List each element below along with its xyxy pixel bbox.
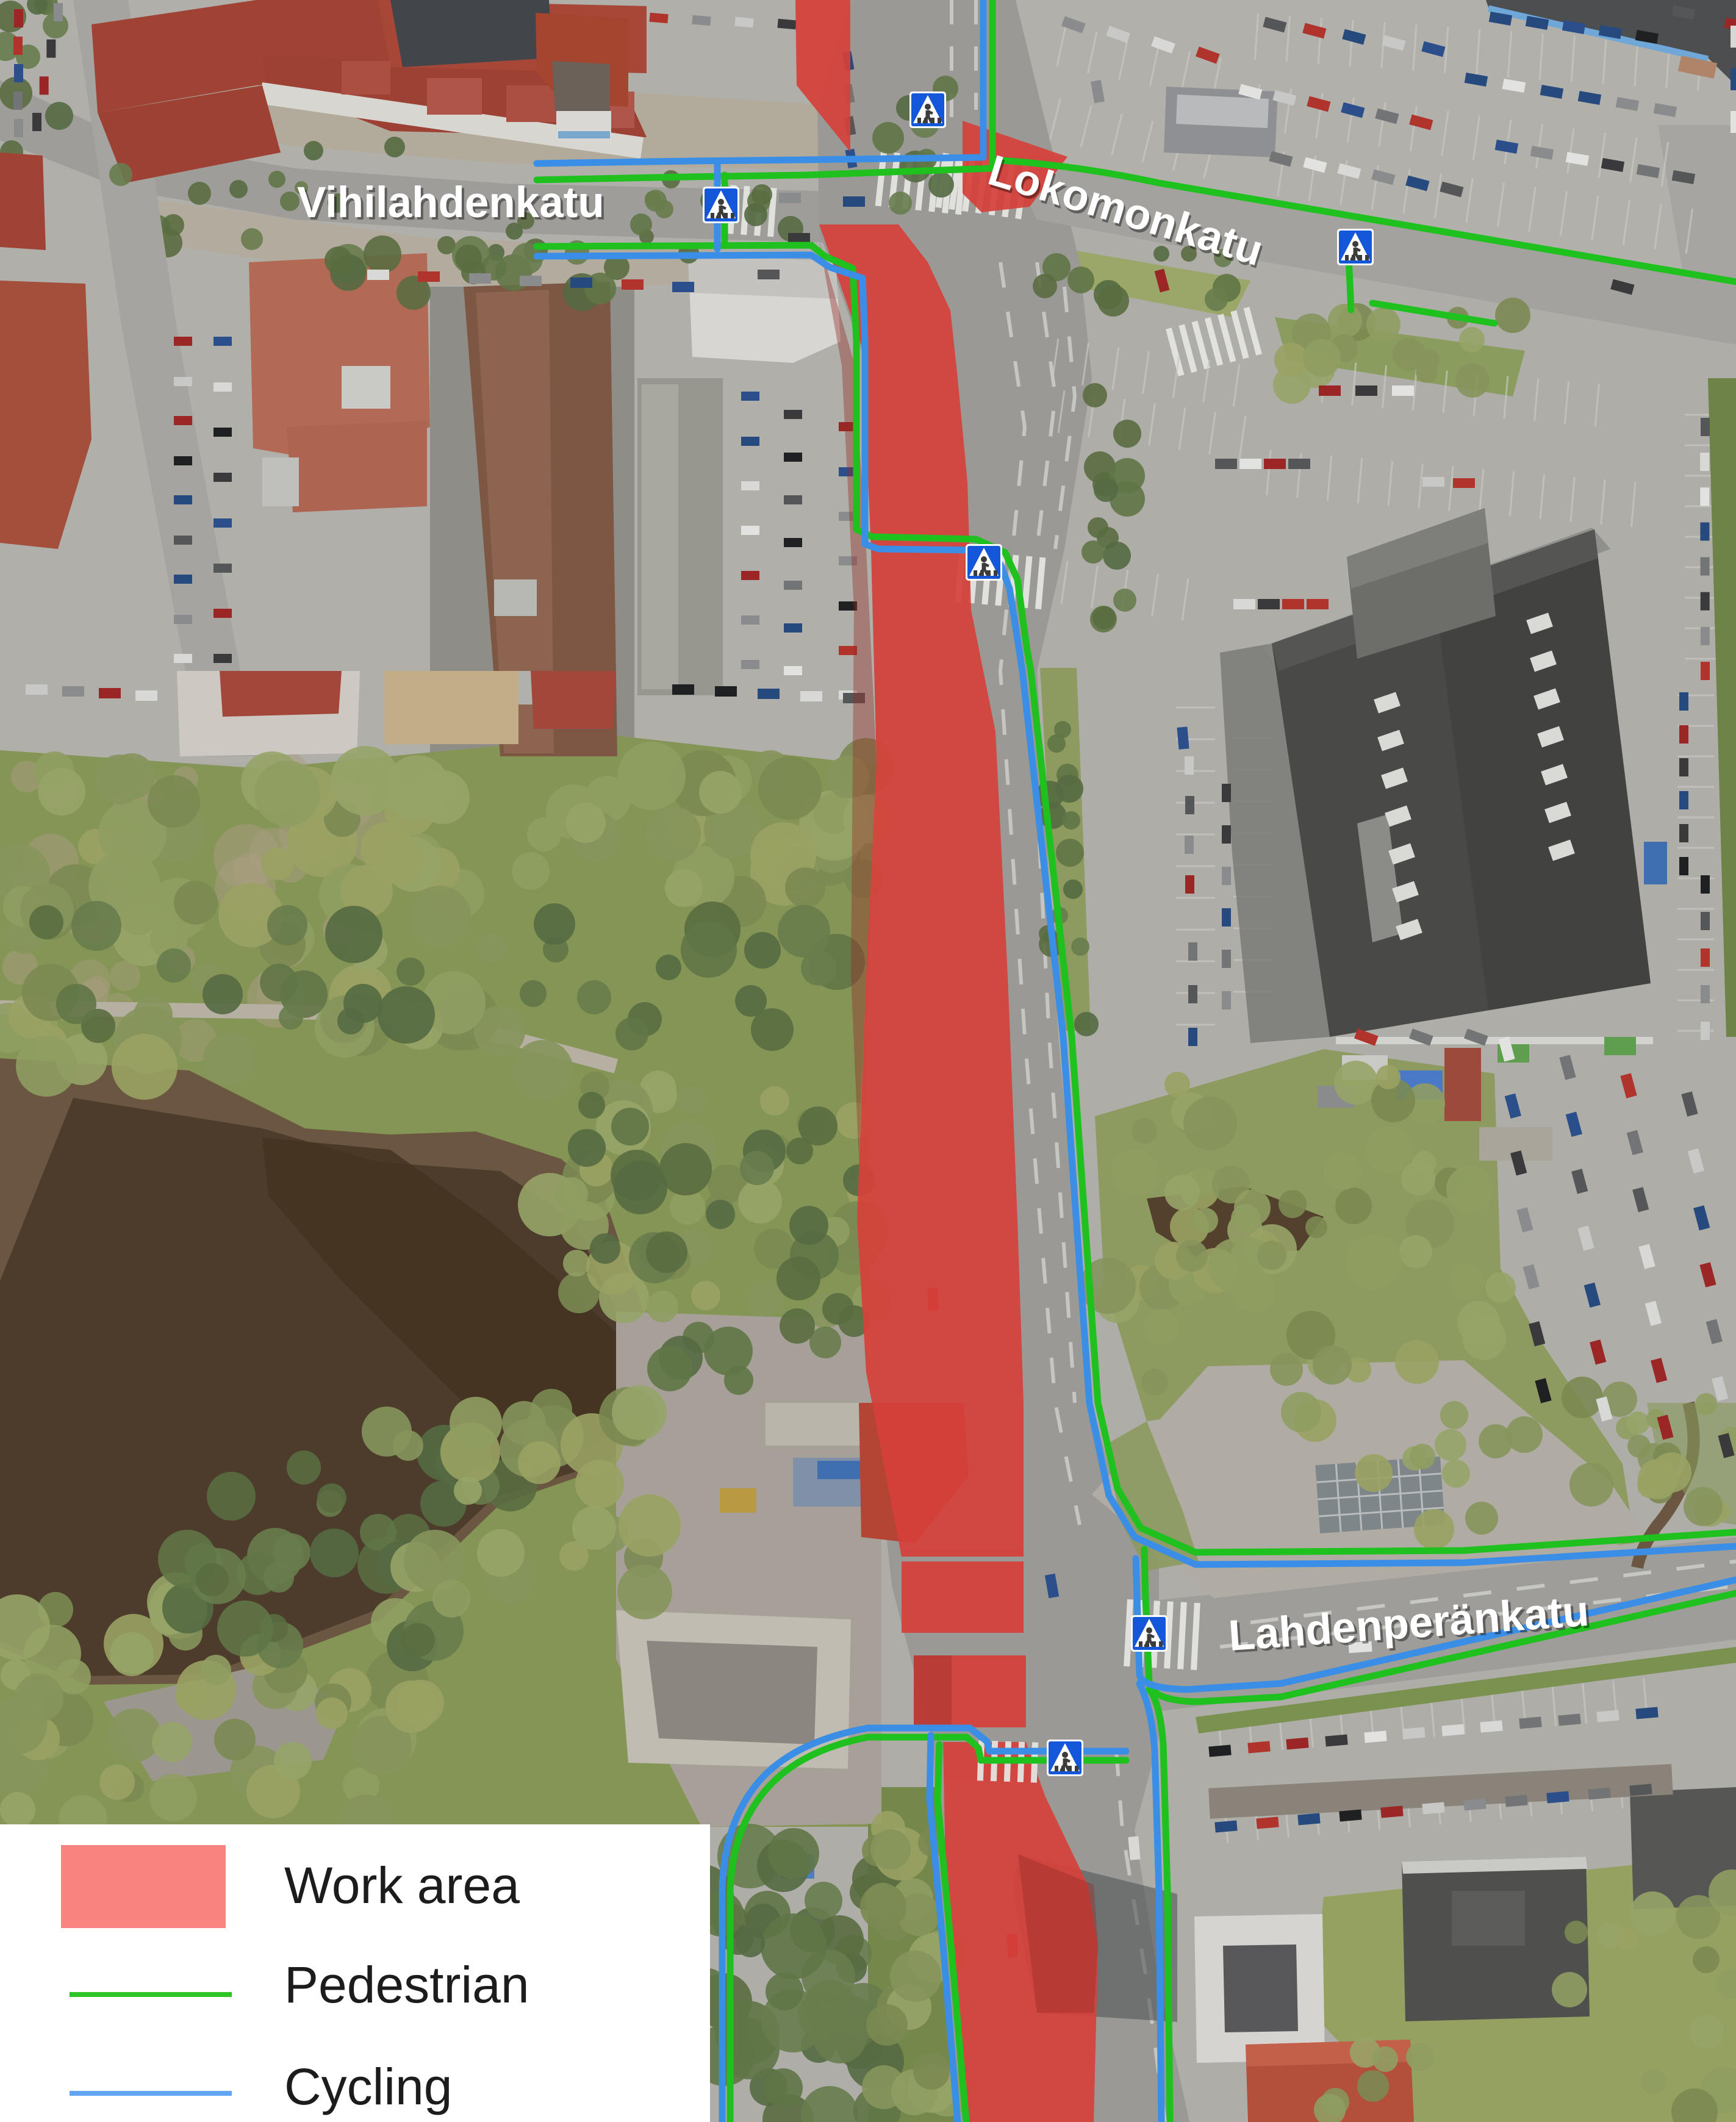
- svg-text:Pedestrian: Pedestrian: [284, 1956, 529, 2013]
- svg-text:Vihilahdenkatu: Vihilahdenkatu: [297, 179, 604, 227]
- svg-text:Work area: Work area: [284, 1857, 520, 1914]
- svg-text:Cycling: Cycling: [284, 2058, 452, 2115]
